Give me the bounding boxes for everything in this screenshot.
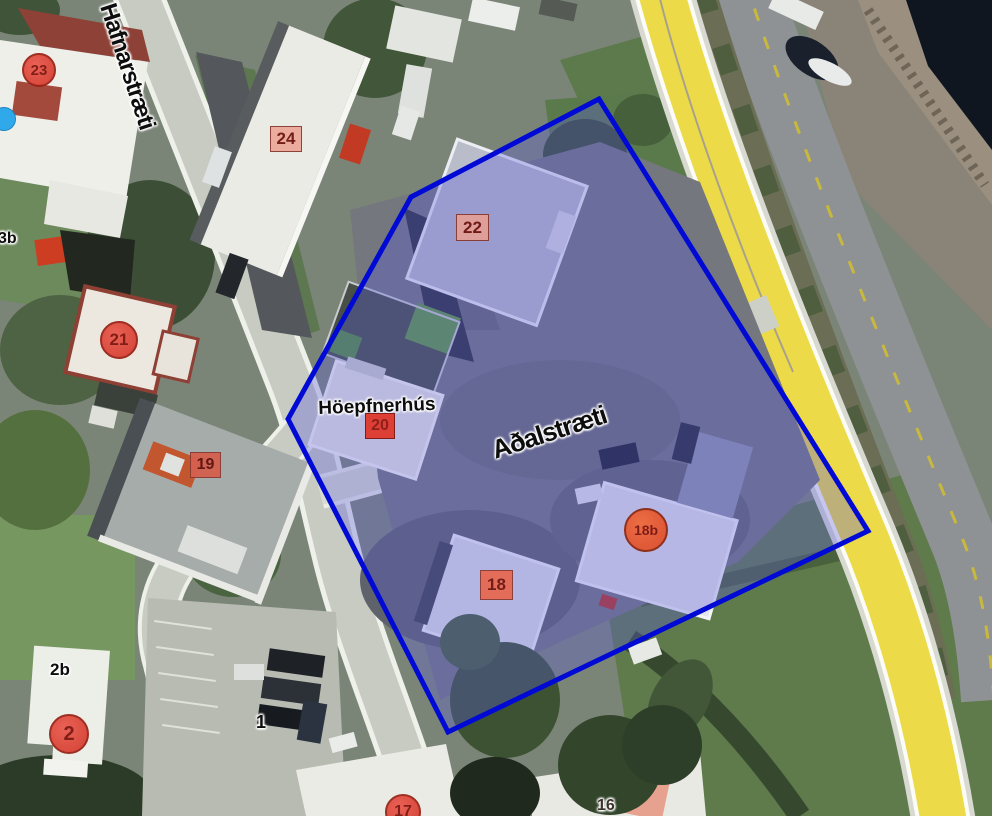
marker-building-22[interactable]: 22 <box>456 214 489 241</box>
marker-building-24[interactable]: 24 <box>270 126 302 152</box>
house-label-16: 16 <box>597 797 615 815</box>
house-label-2b: 2b <box>50 660 70 680</box>
marker-building-18[interactable]: 18 <box>480 570 513 600</box>
marker-building-2[interactable]: 2 <box>49 714 89 754</box>
marker-building-20[interactable]: 20 <box>365 413 395 439</box>
map-canvas[interactable]: Hafnarstræti Aðalstræti Höepfnerhús 2b 1… <box>0 0 992 816</box>
marker-building-23[interactable]: 23 <box>22 53 56 87</box>
lot-label-1: 1 <box>256 712 266 733</box>
house-label-3b: 3b <box>0 230 17 248</box>
marker-building-18b[interactable]: 18b <box>624 508 668 552</box>
marker-building-21[interactable]: 21 <box>100 321 138 359</box>
marker-building-19[interactable]: 19 <box>190 452 221 478</box>
